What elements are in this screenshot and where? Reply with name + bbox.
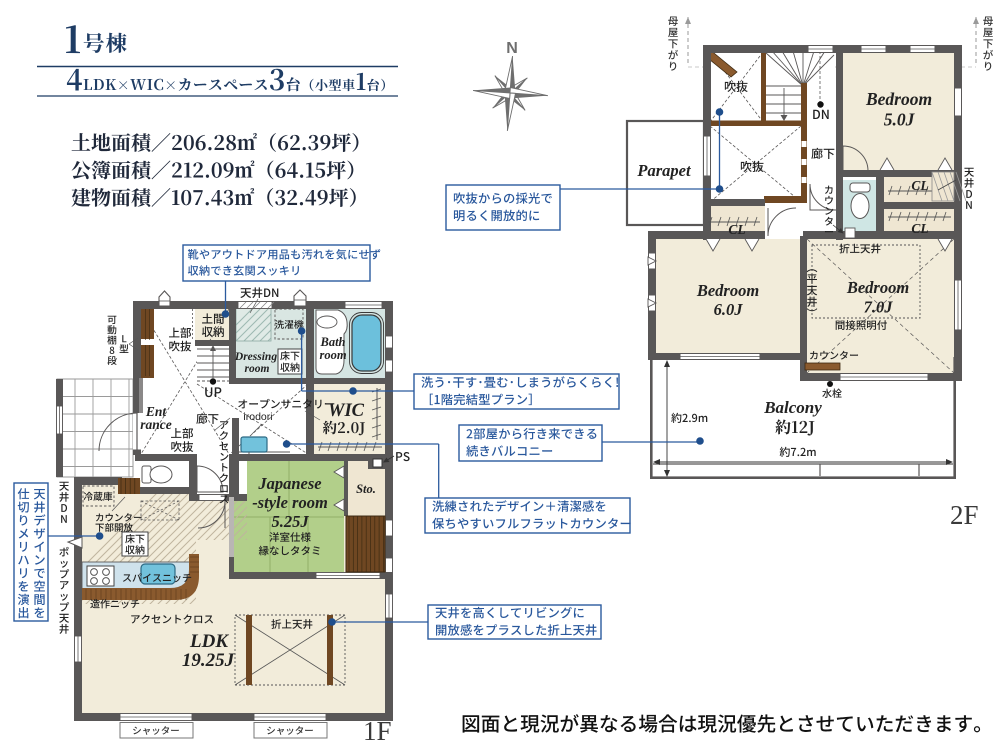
svg-text:Sto.: Sto. — [356, 482, 376, 496]
svg-text:Bedroom: Bedroom — [865, 89, 932, 109]
svg-text:6.0J: 6.0J — [714, 300, 744, 319]
svg-text:7.0J: 7.0J — [864, 298, 894, 317]
svg-text:Balcony: Balcony — [763, 398, 822, 417]
svg-text:Parapet: Parapet — [636, 161, 691, 180]
svg-text:Japanese: Japanese — [257, 474, 321, 493]
svg-text:Bedroom: Bedroom — [696, 281, 760, 300]
svg-text:1F: 1F — [363, 716, 392, 746]
svg-text:Bedroom: Bedroom — [846, 278, 910, 297]
svg-text:room: room — [319, 348, 346, 362]
svg-text:rance: rance — [140, 417, 172, 432]
svg-text:5.0J: 5.0J — [884, 110, 916, 130]
svg-text:irodori: irodori — [243, 411, 272, 423]
svg-text:room: room — [245, 363, 270, 375]
svg-text:CL: CL — [728, 222, 745, 237]
svg-text:Dressing: Dressing — [234, 351, 277, 363]
svg-text:5.25J: 5.25J — [271, 512, 309, 531]
svg-text:Bath: Bath — [319, 335, 345, 349]
svg-text:LDK: LDK — [189, 631, 229, 652]
svg-text:-style room: -style room — [252, 493, 328, 512]
svg-text:CL: CL — [911, 221, 928, 236]
svg-text:19.25J: 19.25J — [182, 650, 235, 671]
svg-text:2F: 2F — [950, 500, 979, 530]
svg-text:N: N — [506, 40, 518, 57]
svg-text:CL: CL — [911, 178, 928, 193]
